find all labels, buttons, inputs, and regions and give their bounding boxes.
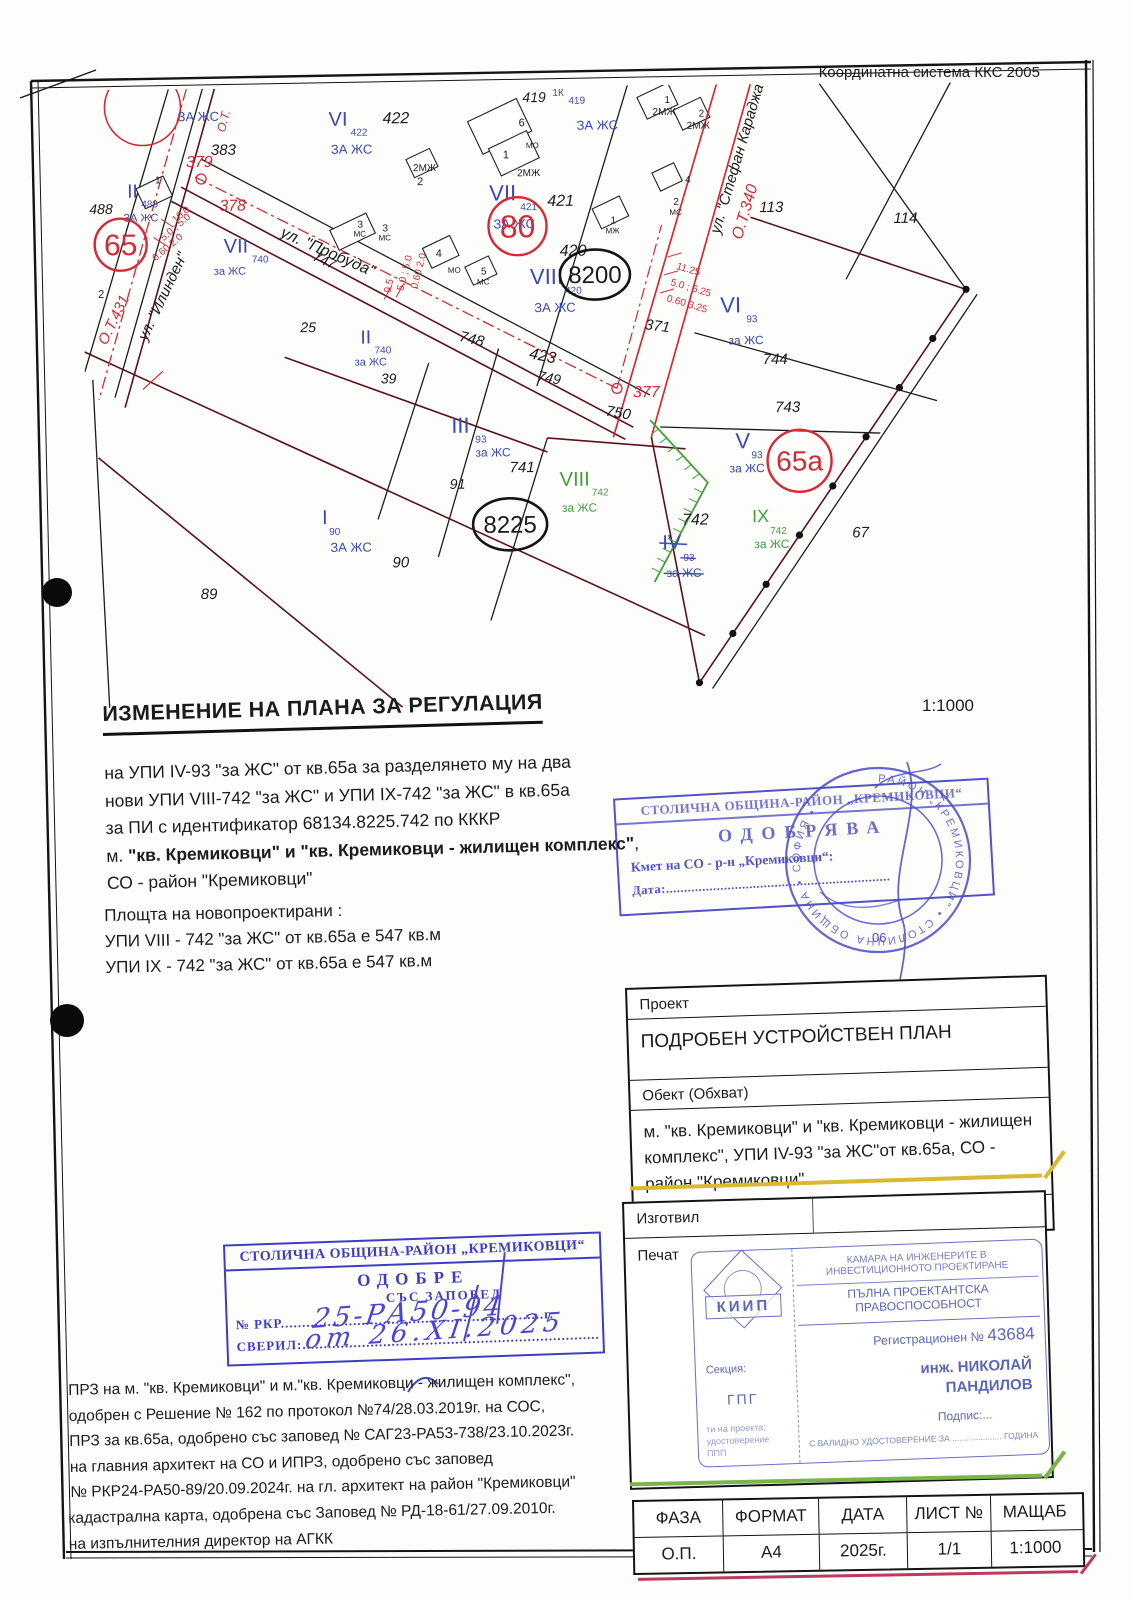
map-label: IX xyxy=(752,506,769,526)
punch-hole xyxy=(50,1004,84,1037)
map-label: VI xyxy=(328,109,347,131)
map-label: за ЖС xyxy=(666,566,702,580)
map-label: 1 xyxy=(155,175,161,186)
author-box: Изготвил Печат КИИП Секция: ГПГ ти на пр… xyxy=(622,1190,1054,1490)
map-label: V xyxy=(735,428,750,453)
map-label: за ЖС xyxy=(214,266,246,278)
map-label: 2МЖ xyxy=(517,168,541,179)
map-label: 9.5 xyxy=(382,277,396,294)
map-label: МС xyxy=(354,230,367,239)
map-label: 4 xyxy=(436,248,442,260)
map-label: 742 xyxy=(770,526,787,537)
map-label: 743 xyxy=(775,399,801,416)
map-label: 89 xyxy=(201,586,218,603)
map-label: МО xyxy=(448,266,461,275)
spec-value-row: О.П. А4 2025г. 1/1 1:1000 xyxy=(635,1530,1084,1573)
spec-header: ФАЗА xyxy=(634,1500,723,1537)
author-label: Изготвил xyxy=(636,1209,699,1228)
spec-value: 1/1 xyxy=(907,1532,992,1568)
object-value: м. "кв. Кремиковци" и "кв. Кремиковци - … xyxy=(631,1097,1052,1207)
map-label: 378 xyxy=(219,198,246,215)
map-label: ЗА ЖС xyxy=(330,540,372,555)
map-label: 2 xyxy=(673,197,679,208)
kiip-engineer-name: инж. НИКОЛАЙ xyxy=(920,1356,1032,1377)
map-label: ЗА ЖС xyxy=(331,141,373,156)
kiip-engineer-name: ПАНДИЛОВ xyxy=(945,1376,1033,1396)
map-label: 423 xyxy=(528,345,558,367)
map-label: I xyxy=(322,507,328,529)
scanned-plan-document: Координатна система ККС 2005 xyxy=(0,0,1131,1600)
map-label: 383 xyxy=(211,142,237,159)
spec-value: 2025г. xyxy=(819,1533,908,1570)
map-label: 39 xyxy=(381,370,397,386)
map-label: ЗА ЖС xyxy=(577,117,619,132)
map-label: 5 xyxy=(481,267,487,278)
map-label: 1К xyxy=(552,88,564,99)
map-label: за ЖС xyxy=(562,501,598,515)
map-label: 67 xyxy=(852,524,869,541)
map-label: 2МЖ xyxy=(652,107,676,118)
map-label: 750 xyxy=(605,403,633,424)
map-label: 114 xyxy=(893,210,917,227)
kiip-registration: Регистрационен № 43684 xyxy=(873,1324,1035,1350)
map-label: МО xyxy=(526,141,539,150)
seal-label: Печат xyxy=(637,1246,679,1264)
cadastre-note: кадастрална карта, одобрена със Заповед … xyxy=(68,1494,644,1557)
spec-header: ДАТА xyxy=(818,1497,907,1534)
approval-history-note: ПРЗ на м. "кв. Кремиковци" и м."кв. Крем… xyxy=(68,1366,646,1506)
approval-stamp-left: СТОЛИЧНА ОБЩИНА-РАЙОН „КРЕМИКОВЦИ“ ОДОБР… xyxy=(223,1231,605,1366)
map-label: 740 xyxy=(375,345,392,356)
map-label: 2 xyxy=(417,176,423,188)
seal-number: 06 xyxy=(872,930,886,945)
map-label: МС xyxy=(669,208,682,217)
map-label: 422 xyxy=(383,110,410,127)
map-label: за ЖС xyxy=(728,333,764,347)
map-label: 2 xyxy=(698,109,704,120)
coordinate-system-note: Координатна система ККС 2005 xyxy=(0,64,1040,81)
map-label: 419 xyxy=(522,89,546,105)
map-ring-label: 8225 xyxy=(483,511,537,538)
map-label: 744 xyxy=(763,351,788,368)
kiip-qualification: ПЪЛНА ПРОЕКТАНТСКА ПРАВОСПОСОБНОСТ xyxy=(797,1280,1040,1326)
map-label: за ЖС xyxy=(355,356,387,368)
kiip-stamp: КИИП Секция: ГПГ ти на проекта: удостове… xyxy=(690,1238,1050,1467)
map-label: МС xyxy=(379,233,392,242)
map-label: 25 xyxy=(299,319,316,335)
map-label: ЗА ЖС xyxy=(534,300,576,315)
map-label: VIII xyxy=(530,264,563,289)
map-label: ЗА ЖС xyxy=(177,109,219,124)
map-label: 742 xyxy=(682,512,709,529)
cadastral-map: ЗА ЖСО.Т.383379378II4881488ЗА ЖС2VII740з… xyxy=(82,82,1007,710)
kiip-left-pane: КИИП Секция: ГПГ ти на проекта: удостове… xyxy=(691,1249,800,1467)
kiip-section-value: ГПГ xyxy=(727,1390,759,1407)
kiip-logo: КИИП xyxy=(705,1294,782,1320)
kiip-note: удостоверение xyxy=(706,1434,769,1446)
map-label: 419 xyxy=(568,96,585,107)
map-label: 93 xyxy=(746,314,758,325)
spec-header: МАЩАБ xyxy=(990,1494,1079,1531)
approval-stamp-right: СТОЛИЧНА ОБЩИНА-РАЙОН „КРЕМИКОВЦИ“ ОДОБР… xyxy=(613,778,995,917)
map-label: III xyxy=(451,413,470,438)
map-ring-label: 65а xyxy=(776,445,823,476)
map-label: 371 xyxy=(644,316,671,336)
map-label: 741 xyxy=(510,459,535,476)
map-drawing: ЗА ЖСО.Т.383379378II4881488ЗА ЖС2VII740з… xyxy=(82,82,1007,710)
author-row: Изготвил xyxy=(624,1192,1045,1239)
map-label: 2МЖ xyxy=(687,121,711,132)
map-label: 742 xyxy=(592,487,609,498)
map-label: 90 xyxy=(329,527,341,538)
map-label: 421 xyxy=(547,193,574,210)
map-label: 488 xyxy=(89,201,113,217)
map-label: МС xyxy=(477,277,490,286)
map-label: за ЖС xyxy=(754,537,790,551)
areas-paragraph: Площта на новопроектирани : УПИ VIII - 7… xyxy=(104,891,666,981)
map-label: 11.25 xyxy=(675,261,702,279)
map-label: 740 xyxy=(252,254,269,265)
map-label: 749 xyxy=(536,367,562,387)
map-label: 1 xyxy=(503,149,509,161)
map-label: 93 xyxy=(475,435,487,446)
map-label: VII xyxy=(224,236,249,258)
map-label: 422 xyxy=(351,128,368,139)
map-label: 379 xyxy=(186,154,213,171)
map-label: за ЖС xyxy=(475,445,511,459)
spec-table: ФАЗА ФОРМАТ ДАТА ЛИСТ № МАЩАБ О.П. А4 20… xyxy=(632,1492,1085,1575)
map-label: 488 xyxy=(141,199,158,210)
spec-value: 1:1000 xyxy=(991,1530,1080,1567)
punch-hole xyxy=(42,578,72,607)
spec-value: А4 xyxy=(723,1535,820,1572)
new-boundary-green xyxy=(650,420,708,582)
map-label: за ЖС xyxy=(730,461,766,475)
spec-header: ЛИСТ № xyxy=(906,1496,991,1532)
map-label: II xyxy=(127,182,138,203)
map-label: 1 xyxy=(664,95,670,106)
spec-value: О.П. xyxy=(635,1536,724,1573)
map-scale: 1:1000 xyxy=(922,696,974,716)
map-label: 91 xyxy=(450,476,466,492)
map-label: VIII xyxy=(560,469,590,491)
map-label: II xyxy=(360,328,371,349)
map-ring-label: 8200 xyxy=(568,262,622,289)
map-label: МЖ xyxy=(606,226,621,235)
map-label: VI xyxy=(720,292,741,317)
map-label: 1 xyxy=(610,215,616,226)
map-label: 113 xyxy=(759,199,784,216)
map-label: 2МЖ xyxy=(413,163,437,174)
map-label: 748 xyxy=(458,328,487,351)
map-label: ЗА ЖС xyxy=(123,212,158,224)
map-label: 93 xyxy=(751,450,763,461)
map-ring-label: 80 xyxy=(500,208,536,244)
spec-header: ФОРМАТ xyxy=(722,1499,819,1536)
map-label: ул. "Илинден" xyxy=(134,249,191,344)
map-label: 2 xyxy=(98,289,104,301)
description-paragraph: на УПИ IV-93 "за ЖС" от кв.65а за раздел… xyxy=(104,746,687,898)
map-label: 4 xyxy=(685,175,691,186)
kiip-note: ППП xyxy=(707,1448,727,1459)
kiip-note: ти на проекта: xyxy=(706,1422,766,1434)
map-ring-label: 65 xyxy=(104,229,138,262)
map-label: 90 xyxy=(392,554,409,571)
kiip-footer: С ВАЛИДНО УДОСТОВЕРЕНИЕ ЗА .............… xyxy=(803,1430,1045,1449)
kiip-signature-label: Подпис:... xyxy=(938,1407,993,1423)
map-label: 377 xyxy=(633,384,661,401)
map-label: 6 xyxy=(519,117,525,129)
kiip-section-label: Секция: xyxy=(706,1363,747,1377)
